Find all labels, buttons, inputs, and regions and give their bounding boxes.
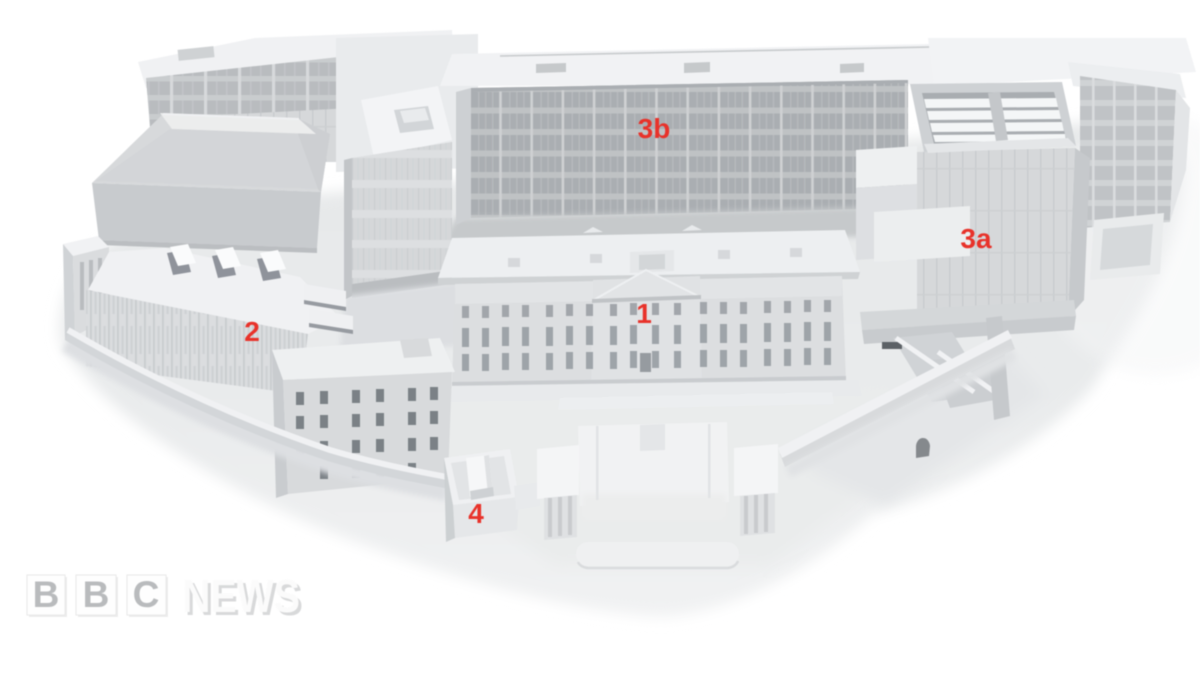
svg-text:C: C	[133, 574, 160, 615]
svg-text:4: 4	[468, 498, 484, 529]
svg-text:2: 2	[244, 316, 260, 347]
svg-text:NEWS: NEWS	[182, 570, 300, 622]
svg-text:3a: 3a	[960, 223, 992, 254]
svg-text:B: B	[83, 574, 110, 615]
svg-text:B: B	[33, 574, 60, 615]
svg-text:3b: 3b	[638, 113, 671, 144]
svg-text:1: 1	[636, 298, 652, 329]
